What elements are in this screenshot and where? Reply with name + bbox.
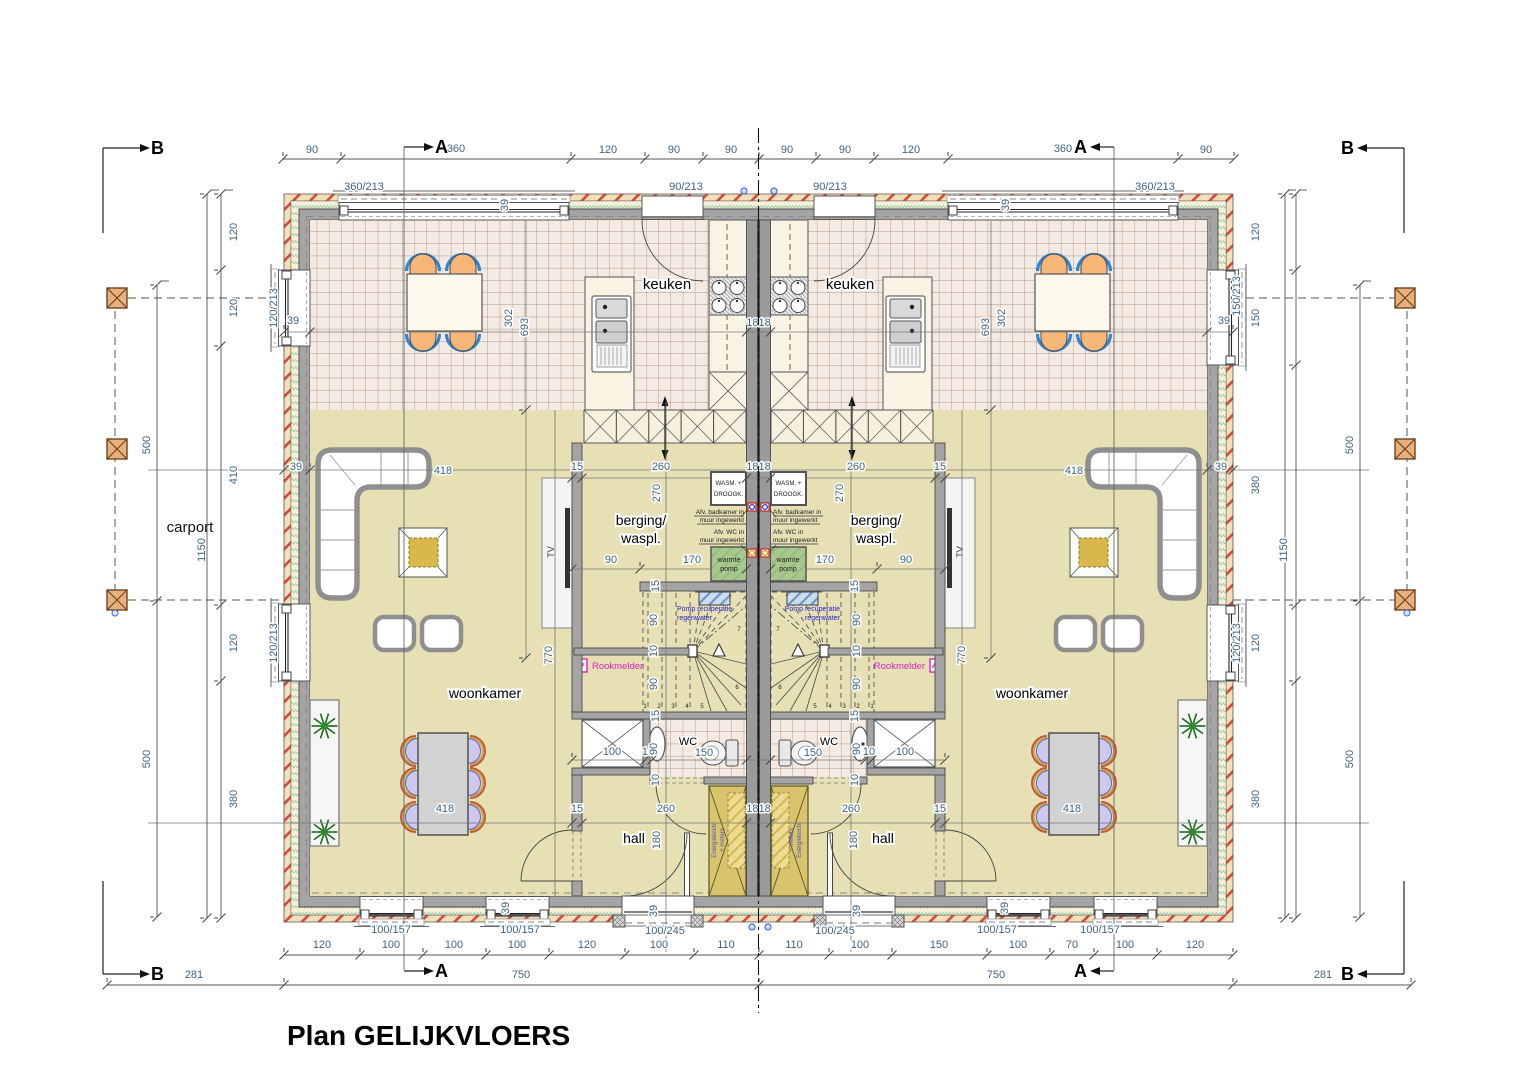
svg-text:90: 90 <box>851 614 863 626</box>
svg-text:pomp: pomp <box>779 566 797 573</box>
svg-text:WASM. +: WASM. + <box>715 480 741 487</box>
svg-text:39: 39 <box>1218 315 1230 327</box>
svg-text:muur ingewerkt: muur ingewerkt <box>700 517 745 524</box>
svg-text:15: 15 <box>849 580 861 592</box>
svg-text:500: 500 <box>1344 436 1356 454</box>
svg-text:90: 90 <box>306 144 318 156</box>
svg-text:302: 302 <box>503 309 515 327</box>
svg-text:260: 260 <box>657 803 675 815</box>
svg-text:270: 270 <box>651 484 663 502</box>
svg-text:150: 150 <box>1250 309 1262 327</box>
svg-text:120: 120 <box>1250 634 1262 652</box>
svg-text:90: 90 <box>781 144 793 156</box>
svg-text:100/157: 100/157 <box>500 924 540 936</box>
svg-text:39: 39 <box>500 902 512 914</box>
svg-text:100/245: 100/245 <box>815 925 855 937</box>
svg-text:410: 410 <box>228 466 240 484</box>
svg-text:15: 15 <box>571 803 583 815</box>
svg-text:keuken: keuken <box>826 276 874 293</box>
svg-text:360: 360 <box>1054 143 1072 155</box>
svg-text:260: 260 <box>842 803 860 815</box>
svg-text:170: 170 <box>816 554 834 566</box>
svg-text:B: B <box>1341 964 1354 984</box>
svg-text:Energiebocht: Energiebocht <box>797 822 803 858</box>
svg-text:90: 90 <box>648 678 660 690</box>
svg-text:120: 120 <box>1186 939 1204 951</box>
svg-text:150: 150 <box>695 747 713 759</box>
svg-text:100/157: 100/157 <box>371 924 411 936</box>
svg-text:693: 693 <box>980 318 992 336</box>
svg-text:39: 39 <box>290 461 302 473</box>
svg-text:A: A <box>1074 961 1087 981</box>
svg-text:WC: WC <box>679 736 697 748</box>
svg-text:150/213: 150/213 <box>1231 276 1243 316</box>
svg-text:muur ingewerkt: muur ingewerkt <box>773 517 818 524</box>
svg-text:260: 260 <box>652 461 670 473</box>
svg-text:regenwater: regenwater <box>805 615 841 622</box>
svg-text:100: 100 <box>603 746 621 758</box>
svg-text:120: 120 <box>228 634 240 652</box>
svg-text:770: 770 <box>956 646 968 664</box>
svg-text:110: 110 <box>717 939 735 951</box>
svg-text:15: 15 <box>934 461 946 473</box>
svg-text:39: 39 <box>287 315 299 327</box>
svg-text:Energiebocht: Energiebocht <box>712 822 718 858</box>
svg-text:Rookmelder: Rookmelder <box>874 661 925 672</box>
svg-text:woonkamer: woonkamer <box>995 685 1069 701</box>
svg-text:15: 15 <box>849 710 861 722</box>
svg-text:90: 90 <box>648 614 660 626</box>
svg-text:360: 360 <box>447 143 465 155</box>
svg-text:302: 302 <box>996 309 1008 327</box>
svg-text:10: 10 <box>849 774 861 786</box>
svg-text:10: 10 <box>650 774 662 786</box>
svg-text:A: A <box>435 961 448 981</box>
svg-text:15: 15 <box>650 580 662 592</box>
svg-text:120: 120 <box>578 939 596 951</box>
svg-text:WASM. +: WASM. + <box>775 480 801 487</box>
svg-text:1150: 1150 <box>196 538 208 562</box>
svg-text:waspl.: waspl. <box>620 530 661 546</box>
svg-text:Afv. WC in: Afv. WC in <box>773 529 804 536</box>
svg-text:120: 120 <box>599 144 617 156</box>
svg-text:693: 693 <box>519 318 531 336</box>
svg-text:100/157: 100/157 <box>1080 924 1120 936</box>
svg-text:+ meters: + meters <box>789 828 795 852</box>
svg-text:Pomp recuperatie: Pomp recuperatie <box>677 606 732 613</box>
svg-text:39: 39 <box>1215 461 1227 473</box>
svg-text:100: 100 <box>1116 939 1134 951</box>
svg-text:281: 281 <box>185 969 203 981</box>
svg-text:100: 100 <box>851 939 869 951</box>
svg-text:B: B <box>1341 138 1354 158</box>
svg-text:DROOGK.: DROOGK. <box>774 491 804 498</box>
svg-text:150: 150 <box>930 939 948 951</box>
svg-text:TV: TV <box>955 546 965 558</box>
svg-text:hall: hall <box>872 830 894 846</box>
svg-text:muur ingewerkt: muur ingewerkt <box>700 537 745 544</box>
svg-text:WC: WC <box>820 736 838 748</box>
svg-text:39: 39 <box>499 199 511 211</box>
svg-text:Afv. WC in: Afv. WC in <box>714 529 745 536</box>
svg-text:90: 90 <box>605 554 617 566</box>
svg-text:750: 750 <box>987 969 1005 981</box>
svg-text:100: 100 <box>382 939 400 951</box>
svg-text:Plan GELIJKVLOERS: Plan GELIJKVLOERS <box>287 1020 570 1051</box>
svg-text:90: 90 <box>1200 144 1212 156</box>
svg-text:90: 90 <box>668 144 680 156</box>
svg-text:120: 120 <box>902 144 920 156</box>
svg-text:A: A <box>435 137 448 157</box>
svg-text:500: 500 <box>1344 750 1356 768</box>
svg-text:hall: hall <box>623 830 645 846</box>
svg-text:90: 90 <box>839 144 851 156</box>
svg-text:770: 770 <box>543 646 555 664</box>
svg-text:100: 100 <box>508 939 526 951</box>
svg-text:120/213: 120/213 <box>1231 623 1243 663</box>
svg-text:100: 100 <box>1009 939 1027 951</box>
svg-text:418: 418 <box>1063 803 1081 815</box>
svg-text:10: 10 <box>851 645 863 657</box>
svg-text:Afv. badkamer in: Afv. badkamer in <box>696 509 745 516</box>
svg-text:pomp: pomp <box>720 566 738 573</box>
svg-text:360/213: 360/213 <box>1135 181 1175 193</box>
svg-text:15: 15 <box>571 461 583 473</box>
svg-text:warmte: warmte <box>717 557 741 564</box>
svg-text:90: 90 <box>900 554 912 566</box>
svg-text:39: 39 <box>1000 199 1012 211</box>
svg-text:100: 100 <box>896 746 914 758</box>
svg-text:waspl.: waspl. <box>855 530 896 546</box>
svg-text:+ meters: + meters <box>720 828 726 852</box>
svg-text:120/213: 120/213 <box>268 288 280 328</box>
svg-text:120/213: 120/213 <box>268 623 280 663</box>
svg-text:90: 90 <box>725 144 737 156</box>
svg-text:39: 39 <box>851 905 863 917</box>
svg-text:muur ingewerkt: muur ingewerkt <box>773 537 818 544</box>
svg-text:A: A <box>1074 137 1087 157</box>
svg-text:90/213: 90/213 <box>813 181 847 193</box>
svg-text:281: 281 <box>1314 969 1332 981</box>
svg-text:B: B <box>151 138 164 158</box>
svg-text:39: 39 <box>999 902 1011 914</box>
svg-text:750: 750 <box>512 969 530 981</box>
svg-text:90: 90 <box>648 743 660 755</box>
svg-text:Rookmelder: Rookmelder <box>592 661 643 672</box>
svg-text:100/157: 100/157 <box>977 924 1017 936</box>
svg-text:10: 10 <box>648 645 660 657</box>
svg-text:DROOGK.: DROOGK. <box>714 491 744 498</box>
svg-text:180: 180 <box>651 831 663 849</box>
svg-text:warmte: warmte <box>776 557 800 564</box>
svg-text:360/213: 360/213 <box>344 181 384 193</box>
svg-text:B: B <box>151 964 164 984</box>
svg-text:120: 120 <box>1250 223 1262 241</box>
svg-text:90: 90 <box>851 743 863 755</box>
svg-text:120: 120 <box>228 223 240 241</box>
svg-text:90: 90 <box>851 678 863 690</box>
svg-text:100: 100 <box>445 939 463 951</box>
svg-text:100/245: 100/245 <box>645 925 685 937</box>
svg-text:100: 100 <box>650 939 668 951</box>
svg-text:120: 120 <box>313 939 331 951</box>
svg-text:1150: 1150 <box>1278 538 1290 562</box>
svg-text:500: 500 <box>141 750 153 768</box>
svg-text:15: 15 <box>650 710 662 722</box>
svg-text:380: 380 <box>228 790 240 808</box>
svg-text:418: 418 <box>434 465 452 477</box>
svg-text:90/213: 90/213 <box>669 181 703 193</box>
svg-text:120: 120 <box>228 299 240 317</box>
svg-text:70: 70 <box>1066 939 1078 951</box>
svg-text:berging/: berging/ <box>851 512 902 528</box>
svg-text:380: 380 <box>1250 476 1262 494</box>
svg-text:berging/: berging/ <box>616 512 667 528</box>
svg-text:180: 180 <box>848 831 860 849</box>
svg-text:418: 418 <box>1065 465 1083 477</box>
svg-text:Pomp recuperatie: Pomp recuperatie <box>785 606 840 613</box>
svg-text:270: 270 <box>834 484 846 502</box>
svg-text:regenwater: regenwater <box>677 615 713 622</box>
svg-text:39: 39 <box>648 905 660 917</box>
svg-text:260: 260 <box>847 461 865 473</box>
svg-text:TV: TV <box>546 546 556 558</box>
svg-text:418: 418 <box>436 803 454 815</box>
svg-text:woonkamer: woonkamer <box>448 685 522 701</box>
svg-text:110: 110 <box>785 939 803 951</box>
svg-text:170: 170 <box>683 554 701 566</box>
svg-text:15: 15 <box>934 803 946 815</box>
svg-text:10: 10 <box>863 746 875 758</box>
svg-text:380: 380 <box>1250 790 1262 808</box>
svg-text:150: 150 <box>804 747 822 759</box>
svg-text:Afv. badkamer in: Afv. badkamer in <box>773 509 822 516</box>
svg-text:500: 500 <box>141 436 153 454</box>
svg-text:keuken: keuken <box>643 276 691 293</box>
